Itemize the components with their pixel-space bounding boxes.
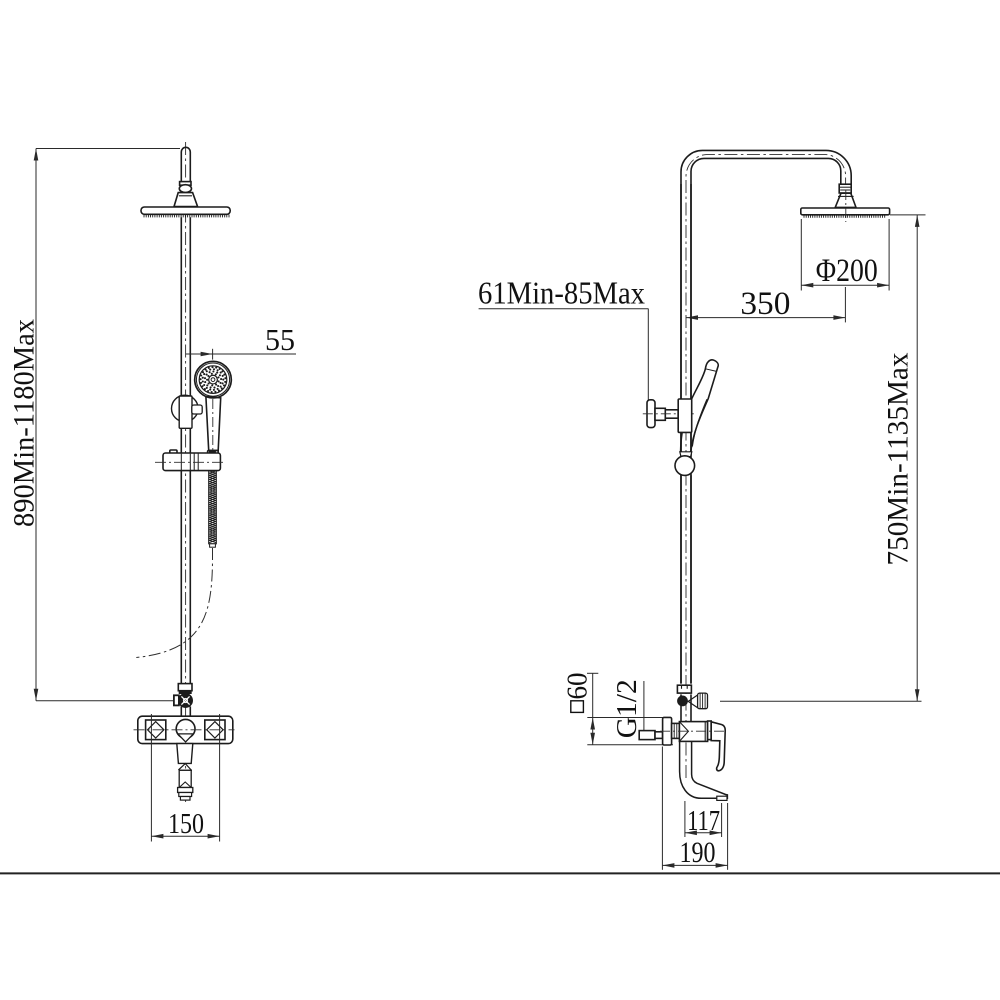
- svg-text:Φ200: Φ200: [816, 253, 878, 289]
- svg-text:117: 117: [687, 806, 720, 837]
- svg-text:150: 150: [168, 809, 204, 840]
- svg-text:190: 190: [680, 836, 716, 869]
- svg-text:G1/2: G1/2: [612, 679, 643, 738]
- svg-text:60: 60: [563, 673, 594, 700]
- svg-text:890Min-1180Max: 890Min-1180Max: [8, 319, 41, 527]
- svg-text:350: 350: [740, 286, 790, 322]
- svg-text:61Min-85Max: 61Min-85Max: [478, 275, 645, 311]
- svg-text:750Min-1135Max: 750Min-1135Max: [882, 353, 915, 566]
- svg-text:55: 55: [265, 322, 295, 357]
